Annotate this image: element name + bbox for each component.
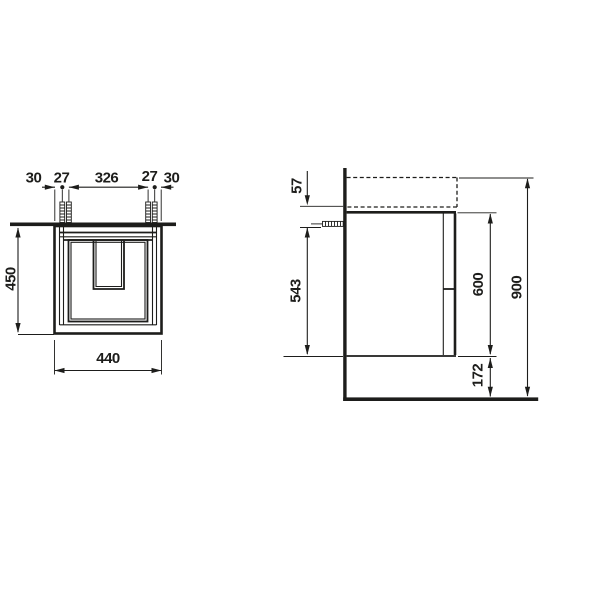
mounting-screw-icon (311, 221, 343, 226)
arrowhead-left-icon (55, 368, 65, 373)
arrowhead-right-icon (138, 185, 148, 190)
front-view: 30 27 326 27 30 450 440 (3, 168, 180, 375)
arrowhead-up-icon (488, 358, 493, 368)
dim-label-27-right: 27 (142, 168, 158, 185)
arrowhead-up-icon (305, 228, 310, 238)
dim-height-450: 450 (3, 228, 55, 335)
dim-label-27-left: 27 (54, 170, 70, 187)
arrowhead-right-icon (152, 368, 162, 373)
screw-icon (152, 202, 157, 223)
dim-label-440: 440 (96, 350, 120, 367)
dim-label-172: 172 (470, 364, 487, 388)
dim-543: 543 (284, 228, 344, 357)
dim-width-440: 440 (55, 340, 162, 375)
arrowhead-up-icon (525, 178, 530, 188)
floor-line (343, 397, 538, 401)
arrowhead-up-icon (15, 228, 20, 238)
dim-dot-icon (153, 185, 157, 189)
screw-icon (146, 202, 151, 223)
arrowhead-left-icon (69, 185, 79, 190)
drawing-canvas: 30 27 326 27 30 450 440 (0, 0, 600, 600)
arrowhead-down-icon (15, 323, 20, 333)
top-rail (60, 233, 157, 241)
dim-57: 57 (289, 171, 344, 206)
dim-label-900: 900 (509, 276, 526, 300)
wall-line (343, 168, 346, 401)
arrowhead-down-icon (305, 195, 310, 205)
basin-dashed-outline (347, 178, 457, 208)
dim-label-600: 600 (470, 273, 487, 297)
dim-600: 600 (458, 213, 497, 357)
dim-label-57: 57 (289, 178, 306, 194)
dim-172: 172 (470, 358, 493, 397)
technical-drawing: 30 27 326 27 30 450 440 (0, 0, 600, 600)
arrowhead-down-icon (488, 387, 493, 397)
siphon-cutout (94, 241, 125, 289)
dim-chain-top: 30 27 326 27 30 (26, 168, 180, 190)
cabinet-inner-frame (60, 227, 157, 326)
drawer-front-panel-inner (71, 242, 145, 319)
dim-label-30-left: 30 (26, 170, 42, 187)
screw-icon (60, 202, 65, 223)
dim-label-450: 450 (3, 267, 20, 291)
dim-label-30-right: 30 (164, 170, 180, 187)
screw-icon (67, 202, 72, 223)
dim-label-543: 543 (288, 279, 305, 303)
side-view: 57 543 600 172 (284, 168, 539, 401)
arrowhead-down-icon (488, 345, 493, 355)
drawer-front-panel (69, 240, 148, 322)
fixing-screws (55, 190, 161, 223)
arrowhead-up-icon (488, 214, 493, 224)
arrowhead-down-icon (305, 345, 310, 355)
dim-label-326: 326 (95, 170, 119, 187)
arrowhead-down-icon (525, 387, 530, 397)
